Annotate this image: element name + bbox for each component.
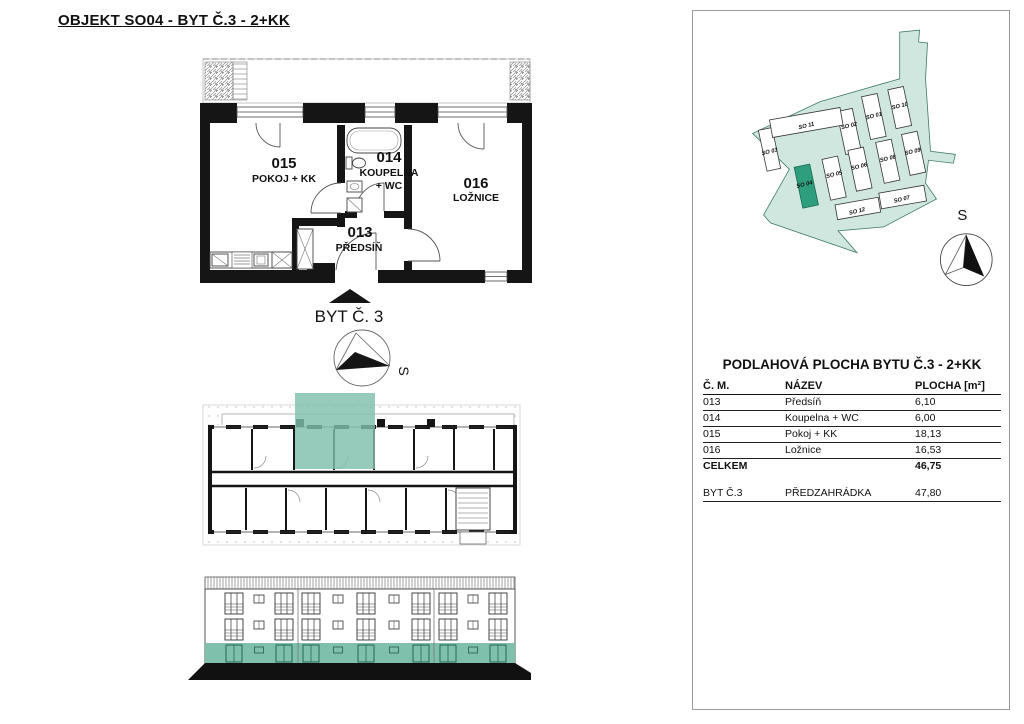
table-total-row: CELKEM 46,75	[703, 459, 1001, 474]
building-elevation	[188, 577, 531, 680]
header-cm: Č. M.	[703, 379, 785, 394]
compass-label: S	[396, 366, 412, 375]
unit-label-group: BYT Č. 3	[315, 289, 384, 326]
stove	[232, 252, 252, 268]
area-table-title: PODLAHOVÁ PLOCHA BYTU Č.3 - 2+KK	[703, 357, 1001, 372]
cell-area: 6,00	[915, 411, 1001, 426]
room-013-name: PŘEDSÍŇ	[336, 241, 383, 254]
apartment-floor-plan: 015 POKOJ + KK 014 KOUPELNA + WC 016 LOŽ…	[200, 59, 532, 283]
table-row: 014 Koupelna + WC 6,00	[703, 411, 1001, 427]
planting-hatch	[205, 62, 233, 100]
site-location-panel: SO 01 SO 02 SO 03 SO 04 SO 05 SO 06 SO 0…	[692, 10, 1010, 710]
compass-detail: S	[334, 330, 412, 386]
terrace-area	[203, 59, 530, 103]
apartment-highlight	[295, 393, 375, 469]
cell-name: Pokoj + KK	[785, 427, 915, 442]
compass-label: S	[957, 208, 967, 224]
total-label: CELKEM	[703, 459, 785, 474]
roof-strip	[205, 577, 515, 589]
paving-strip	[233, 62, 247, 100]
cell-name: Předsíň	[785, 395, 915, 410]
cell-area: 47,80	[915, 486, 1001, 501]
cell-num: 013	[703, 395, 785, 410]
table-row: 015 Pokoj + KK 18,13	[703, 427, 1001, 443]
table-extra-row: BYT Č.3 PŘEDZAHRÁDKA 47,80	[703, 486, 1001, 502]
room-014-name: KOUPELNA	[360, 167, 419, 179]
header-plocha: PLOCHA [m²]	[915, 379, 1001, 394]
area-table: PODLAHOVÁ PLOCHA BYTU Č.3 - 2+KK Č. M. N…	[703, 357, 1001, 502]
unit-label: BYT Č. 3	[315, 307, 384, 326]
room-016-name: LOŽNICE	[453, 191, 499, 204]
cell-name: Koupelna + WC	[785, 411, 915, 426]
compass-site: S	[940, 208, 992, 286]
room-014-name2: + WC	[376, 180, 403, 192]
room-013-number: 013	[347, 224, 372, 241]
total-value: 46,75	[915, 459, 1001, 474]
kitchen-counter	[210, 252, 292, 268]
ground-mass	[188, 663, 531, 680]
room-015-name: POKOJ + KK	[252, 173, 316, 185]
drawings-canvas: 015 POKOJ + KK 014 KOUPELNA + WC 016 LOŽ…	[0, 0, 690, 724]
room-016-number: 016	[463, 175, 488, 192]
cell-area: 16,53	[915, 443, 1001, 458]
north-arrow-icon	[963, 235, 984, 277]
area-table-header: Č. M. NÁZEV PLOCHA [m²]	[703, 379, 1001, 395]
planting-hatch	[510, 62, 530, 100]
wardrobe	[297, 229, 313, 269]
cell-num: 014	[703, 411, 785, 426]
unit-pointer-icon	[329, 289, 371, 303]
room-014-number: 014	[376, 149, 402, 166]
header-nazev: NÁZEV	[785, 379, 915, 394]
cell-name: Ložnice	[785, 443, 915, 458]
cell-name: PŘEDZAHRÁDKA	[785, 486, 915, 501]
entrance-stub	[460, 532, 486, 544]
cell-num: BYT Č.3	[703, 486, 785, 501]
floor-overview-plan	[203, 393, 520, 545]
cell-area: 18,13	[915, 427, 1001, 442]
table-row: 016 Ložnice 16,53	[703, 443, 1001, 459]
cell-num: 016	[703, 443, 785, 458]
table-row: 013 Předsíň 6,10	[703, 395, 1001, 411]
cell-area: 6,10	[915, 395, 1001, 410]
staircase	[456, 488, 490, 544]
cell-num: 015	[703, 427, 785, 442]
toilet-tank	[346, 157, 352, 169]
room-015-number: 015	[271, 155, 296, 172]
